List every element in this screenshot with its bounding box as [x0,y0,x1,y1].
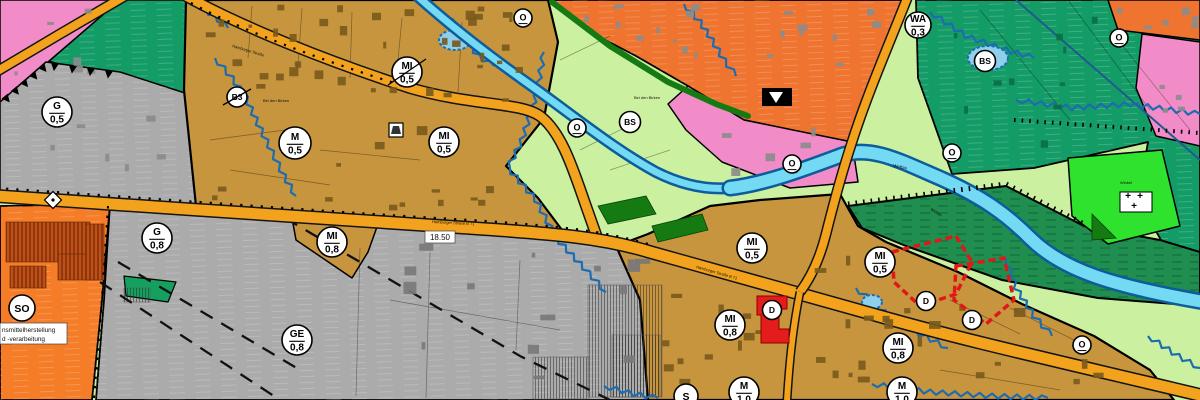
svg-text:0,5: 0,5 [437,145,451,156]
svg-text:G: G [153,227,161,238]
building [671,294,682,298]
zone-label-M-0,5: M0,5 [279,127,311,159]
building [929,321,941,329]
svg-text:SO: SO [14,303,29,315]
svg-text:O: O [948,147,955,157]
building [233,59,243,66]
building [390,87,397,93]
zone-label-MI-0,8: MI0,8 [883,333,913,363]
svg-text:Bei den Birken: Bei den Birken [634,95,660,100]
building [340,26,347,35]
zone-label-MI-0,8: MI0,8 [715,310,745,340]
building [816,357,825,363]
svg-text:0,8: 0,8 [150,241,164,252]
building [77,124,86,128]
building [1163,20,1169,25]
building [1074,379,1080,384]
svg-text:M: M [291,132,299,143]
building [1192,16,1199,21]
zone-label-O: O [943,144,961,162]
svg-text:0,5: 0,5 [400,75,414,86]
zone-label-GE-0,8: GE0,8 [282,325,312,355]
building [325,197,333,202]
zone-label-D: D [763,301,782,320]
svg-text:0,5: 0,5 [873,265,887,276]
building [624,355,636,363]
building [540,315,555,321]
building [594,266,601,272]
svg-text:+: + [1137,191,1143,202]
map-annotation: Winkel [1120,180,1132,185]
svg-text:1,0: 1,0 [737,395,751,400]
zone-label-BS: BS [975,51,996,72]
zone-label-MI-0,5: MI0,5 [429,127,459,157]
building [419,244,433,251]
building [383,42,386,49]
building [993,80,1001,85]
building [918,337,923,347]
building [50,145,55,151]
building [502,98,509,101]
building [738,341,742,351]
building [478,200,485,206]
building [289,67,298,76]
building [405,267,417,276]
building [679,379,690,384]
zone-label-M-1,0: M1,0 [887,377,917,400]
building [125,164,129,171]
building [798,25,808,31]
building [872,21,881,28]
building [867,9,874,16]
building [835,63,844,66]
cemetery-symbol-icon: +++ [1120,191,1152,212]
building [276,74,284,81]
svg-text:MI: MI [724,314,735,325]
building [502,45,510,51]
svg-text:0,8: 0,8 [723,328,737,339]
building [442,38,448,45]
svg-text:nsmittelherstellung: nsmittelherstellung [2,327,56,334]
building [833,34,837,41]
map-annotation: Bei den Birken [263,98,289,103]
zone-label-M-1,0: M1,0 [729,377,759,400]
building [532,253,536,258]
building [1041,140,1048,147]
building [105,154,109,162]
building [849,373,853,377]
building [336,163,341,167]
map-annotation: d -verarbeitung [2,336,45,343]
building [1093,373,1103,378]
building [858,377,870,383]
svg-text:1,0: 1,0 [895,395,909,400]
building [146,116,155,122]
building [432,189,440,192]
map-annotation: Bei den Birken [634,95,660,100]
building [662,340,669,346]
building [315,70,324,79]
building [389,205,397,211]
building [616,22,620,29]
zone-mixed-use-brown-north [184,0,562,230]
building [480,53,484,62]
building [801,143,812,149]
monument-icon [389,123,403,137]
svg-text:O: O [573,122,580,132]
building [1143,26,1152,29]
zone-label-MI-0,5: MI0,5 [737,233,767,263]
svg-text:0,5: 0,5 [288,146,302,157]
building [694,53,698,58]
building [1117,8,1122,14]
building [249,25,253,28]
building [833,371,839,379]
building [744,333,755,341]
building [904,308,910,313]
building [864,316,874,321]
building [1191,22,1198,29]
building [256,84,265,89]
building [1082,359,1088,369]
building [73,57,81,65]
zoning-map-viewport[interactable]: +++ G0,5B3M0,5MI0,5MI0,5OOBSOWA0,3BSOOG0… [0,0,1200,400]
building [338,77,346,86]
building [1182,8,1190,15]
svg-text:0,3: 0,3 [911,28,925,39]
building [766,153,776,161]
building [635,259,650,264]
building [477,65,483,68]
svg-text:d -verarbeitung: d -verarbeitung [2,336,45,343]
building [277,5,284,11]
zone-label-G-0,8: G0,8 [142,223,172,253]
svg-text:MI: MI [438,131,449,142]
building [534,376,545,380]
building [528,345,539,354]
building [811,128,815,137]
svg-text:Bei den Birken: Bei den Birken [263,98,289,103]
zone-label-O: O [1110,29,1128,47]
building [767,54,773,58]
building [47,22,54,25]
svg-text:18.50: 18.50 [430,233,451,242]
svg-text:G: G [53,101,61,112]
building [438,200,444,206]
building [678,358,684,364]
zone-label-MI-0,8: MI0,8 [317,227,347,257]
building [784,11,793,15]
building [471,197,478,200]
zone-label-D: D [963,311,982,330]
building [1163,108,1168,113]
building [954,33,958,38]
building [206,32,216,37]
building [296,61,302,68]
building [722,133,732,138]
building [682,47,688,54]
building [1053,105,1061,110]
building [212,195,217,200]
zone-label-G-0,5: G0,5 [42,97,72,127]
svg-text:0,5: 0,5 [50,115,64,126]
zone-label-O: O [1073,336,1091,354]
zone-label-D: D [917,292,936,311]
hatched-area [612,335,660,397]
svg-text:M: M [740,381,748,392]
building [452,41,461,47]
zone-label-BS: BS [620,112,641,133]
building [503,12,513,18]
svg-text:O: O [519,12,526,22]
building [815,268,827,273]
building [780,31,784,38]
building [1160,85,1165,89]
building [467,283,475,289]
building [846,256,850,266]
zone-label-S: S [674,384,698,400]
svg-text:MI: MI [746,237,757,248]
building [964,106,968,114]
building [509,18,512,22]
svg-text:GE: GE [290,329,305,340]
building [375,142,385,149]
building [858,361,865,370]
zone-label-O: O [783,155,801,173]
zone-label-O: O [568,119,586,137]
svg-text:O: O [1115,32,1122,42]
svg-text:D: D [923,296,929,306]
zoning-map: +++ G0,5B3M0,5MI0,5MI0,5OOBSOWA0,3BSOOG0… [0,0,1200,400]
zone-label-O: O [514,9,532,27]
building [478,7,485,12]
svg-text:BS: BS [624,117,636,127]
svg-text:M: M [898,381,906,392]
svg-text:MI: MI [874,251,885,262]
building [260,73,269,79]
building [584,15,588,22]
svg-text:+: + [1131,201,1137,212]
building [995,362,1001,366]
building [486,186,494,193]
map-annotation: 18.50 [425,231,455,243]
svg-text:BS: BS [979,56,991,66]
building [1014,308,1026,317]
building [218,187,227,192]
building [1063,47,1066,54]
building [1178,107,1185,111]
building [219,20,225,27]
building [1060,82,1065,86]
industrial-building [10,266,46,288]
building [404,282,417,294]
building [664,364,674,371]
building [371,88,376,92]
svg-text:D: D [969,315,975,325]
svg-text:O: O [788,158,795,168]
building [497,61,502,65]
svg-text:0,8: 0,8 [290,343,304,354]
building [417,126,428,135]
building [1009,78,1015,85]
industrial-building [86,224,104,280]
building [426,88,433,96]
building [290,34,297,42]
building [1092,17,1098,24]
building [337,5,343,12]
svg-text:MI: MI [326,231,337,242]
building [636,36,643,41]
svg-text:Winkel: Winkel [1120,180,1132,185]
svg-text:MI: MI [401,61,412,72]
building [976,372,985,378]
building [157,154,166,159]
svg-text:MI: MI [892,337,903,348]
zone-label-SO: SO [9,295,35,321]
svg-text:0,8: 0,8 [325,245,339,256]
building [85,9,92,14]
triangle-symbol-icon [762,88,792,106]
building [405,9,415,16]
building [705,354,713,359]
building [319,19,328,26]
svg-text:S: S [682,391,689,400]
building [656,28,660,34]
building [444,93,452,98]
zone-label-MI-0,5: MI0,5 [865,247,895,277]
building [1056,34,1063,41]
building [372,13,381,20]
building [673,39,676,42]
svg-text:0,8: 0,8 [891,351,905,362]
building [616,4,624,8]
building [846,319,851,328]
building [422,342,426,349]
building [620,286,627,295]
svg-text:WA: WA [910,14,926,25]
building [14,71,17,75]
zone-label-WA-0,3: WA0,3 [905,12,931,39]
building [731,168,740,176]
svg-text:0,5: 0,5 [745,251,759,262]
building [474,14,483,20]
svg-text:O: O [1078,339,1085,349]
svg-text:D: D [769,305,775,315]
building [516,67,523,73]
building [686,11,694,18]
building [400,202,406,207]
building [691,4,700,11]
building [1176,95,1182,100]
building [273,29,278,37]
building [883,316,890,322]
